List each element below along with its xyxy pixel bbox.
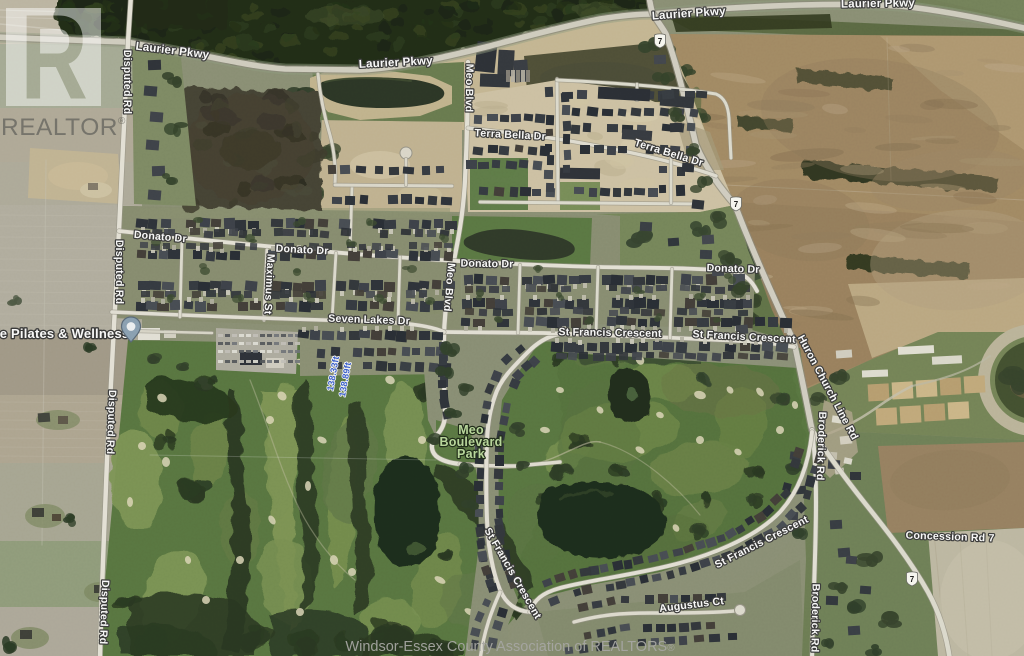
svg-text:Windsor-Essex County Associati: Windsor-Essex County Association of REAL… xyxy=(345,639,675,655)
svg-text:REALTOR®: REALTOR® xyxy=(1,114,126,141)
